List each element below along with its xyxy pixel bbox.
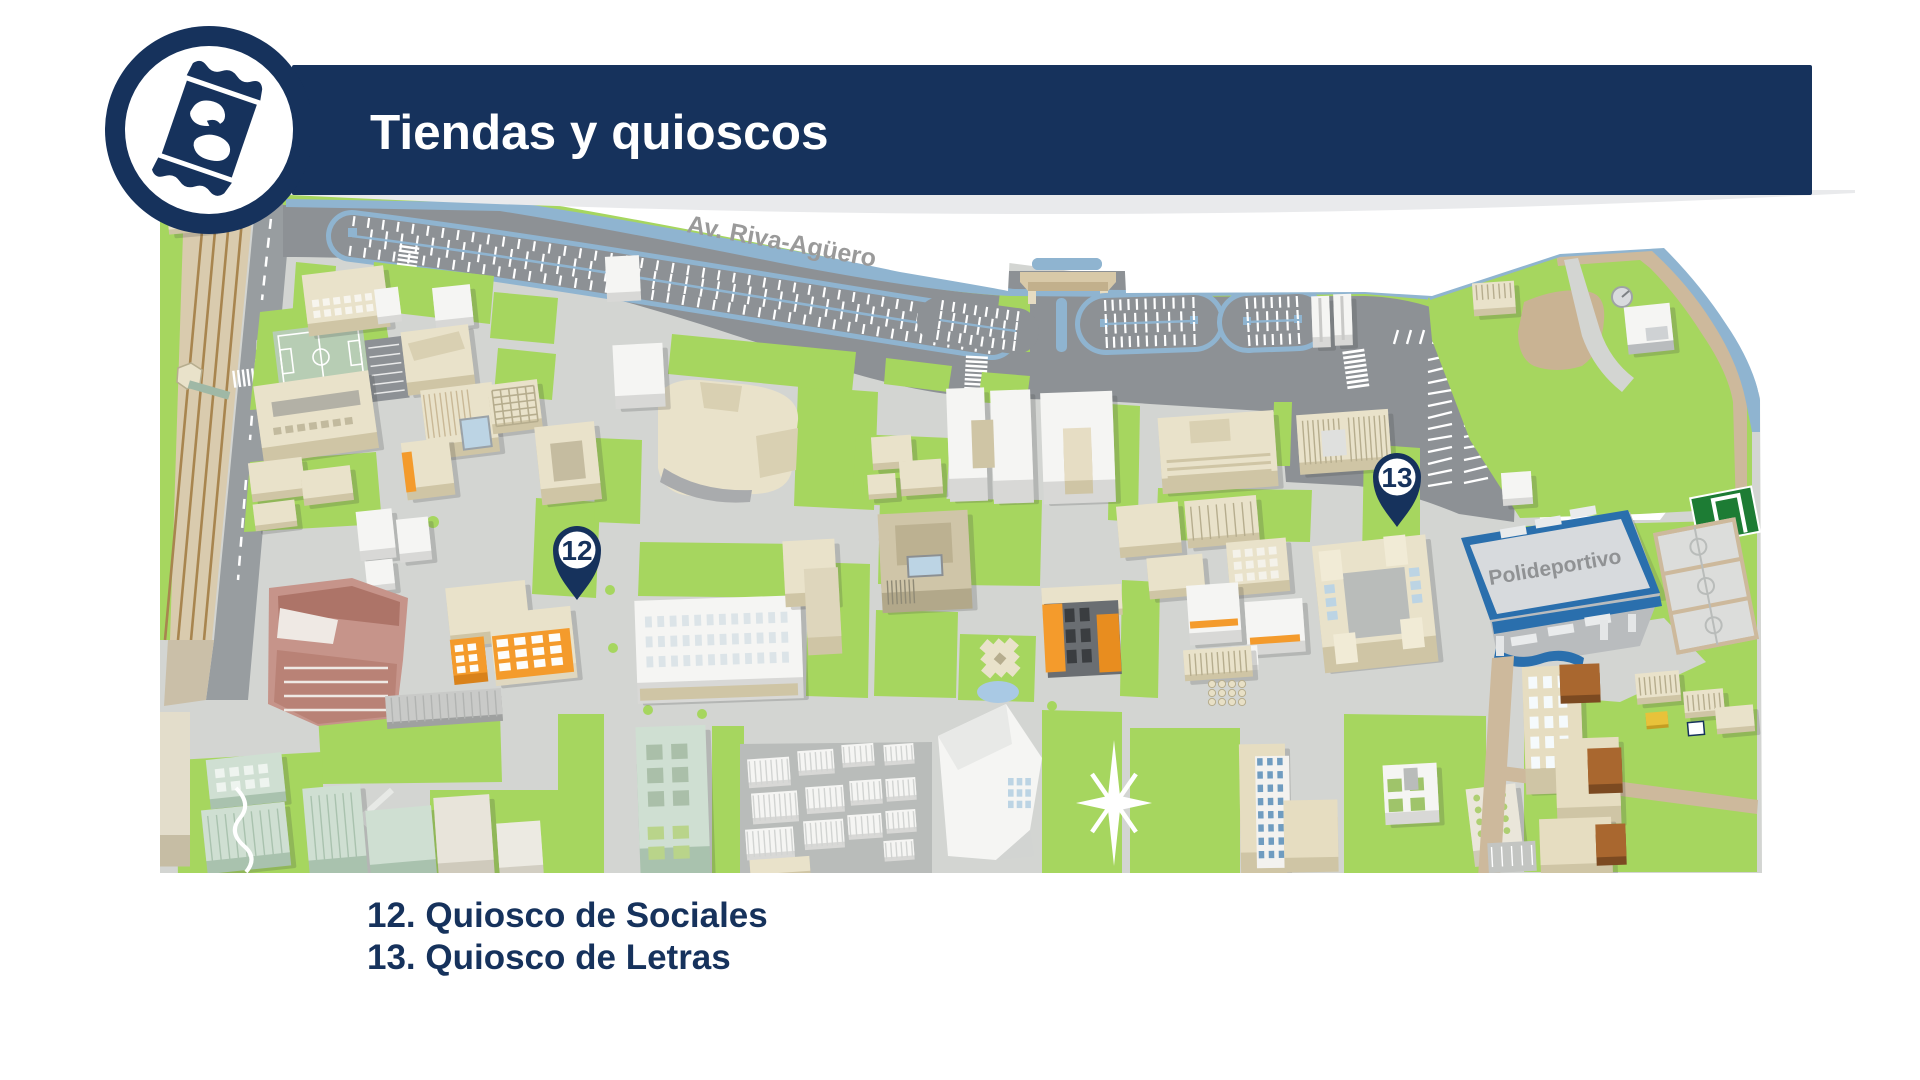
svg-text:13: 13 bbox=[1381, 462, 1412, 493]
svg-text:12. Quiosco de Sociales: 12. Quiosco de Sociales bbox=[367, 896, 768, 935]
svg-text:Tiendas y quioscos: Tiendas y quioscos bbox=[370, 105, 828, 160]
svg-text:12: 12 bbox=[561, 535, 592, 566]
svg-text:13. Quiosco de Letras: 13. Quiosco de Letras bbox=[367, 938, 731, 977]
